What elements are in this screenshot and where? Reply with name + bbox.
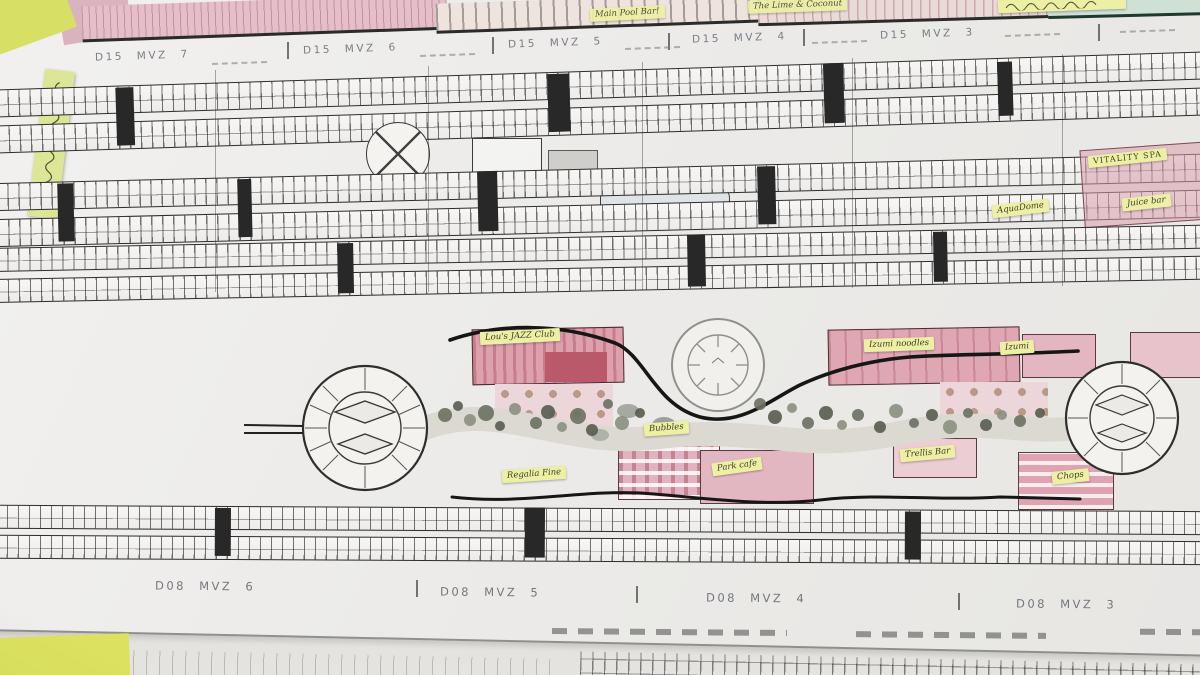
zone-label-d08-6: D08 MVZ 6	[155, 578, 255, 593]
stair-core	[905, 512, 921, 560]
sticky-note-text: Regalia Fine	[507, 467, 562, 481]
zone-divider	[1098, 24, 1100, 41]
stair-core	[525, 508, 545, 558]
zone-divider	[958, 593, 960, 610]
sticky-note-text: The Lime & Coconut	[753, 0, 842, 12]
izumi-room	[828, 326, 1021, 385]
sticky-note-text: Juice bar	[1127, 195, 1167, 209]
photo-of-deck-plans: Main Pool Bar! The Lime & Coconut D15 MV…	[0, 0, 1200, 675]
under-sheet-grid	[119, 650, 550, 675]
park-tables	[495, 384, 613, 428]
zone-divider	[492, 37, 494, 54]
sticky-note-text: Lou's JAZZ Club	[485, 329, 555, 343]
stair-core	[547, 73, 571, 132]
zone-divider	[416, 580, 418, 597]
zone-divider	[636, 586, 638, 603]
handwriting-scribble	[1003, 0, 1113, 11]
sticky-note-text: Izumi	[1005, 341, 1030, 353]
stair-core	[337, 243, 354, 293]
stair-core	[823, 63, 845, 124]
stair-core	[757, 166, 776, 224]
bulkhead-line	[852, 58, 853, 288]
zone-label-d08-4: D08 MVZ 4	[706, 590, 806, 605]
sticky-note-text: Main Pool Bar!	[595, 6, 660, 19]
bulkhead-line	[215, 70, 216, 292]
bulkhead-line	[428, 66, 429, 292]
zone-label-d08-5: D08 MVZ 5	[440, 584, 540, 599]
stair-core	[115, 87, 135, 146]
under-sheet-corner	[0, 633, 131, 675]
stair-core	[933, 232, 948, 282]
stair-core	[997, 62, 1014, 116]
bulkhead-line	[642, 62, 643, 290]
sticky-note-text: Bubbles	[649, 422, 684, 434]
bulkhead-line	[1062, 54, 1063, 286]
sticky-note-text: Chops	[1057, 470, 1085, 483]
stair-core	[477, 171, 498, 231]
micro-annotations	[1140, 629, 1200, 636]
zone-divider	[287, 42, 289, 59]
sticky-note-text: Trellis Bar	[905, 446, 951, 460]
stair-core	[237, 179, 252, 237]
park-side-room	[1130, 332, 1200, 378]
sticky-note-izumi-noodles: Izumi noodles	[864, 337, 934, 352]
stair-core	[687, 234, 706, 286]
sticky-note-text: Izumi noodles	[869, 338, 929, 350]
jazz-club-stage	[545, 352, 607, 382]
zone-divider	[803, 29, 805, 46]
stair-core	[215, 508, 231, 556]
sticky-note-izumi: Izumi	[1000, 340, 1035, 355]
under-sheet-grid	[579, 651, 1200, 675]
zone-label-d08-3: D08 MVZ 3	[1016, 596, 1116, 611]
park-tables	[940, 382, 1048, 428]
stair-core	[57, 183, 74, 241]
